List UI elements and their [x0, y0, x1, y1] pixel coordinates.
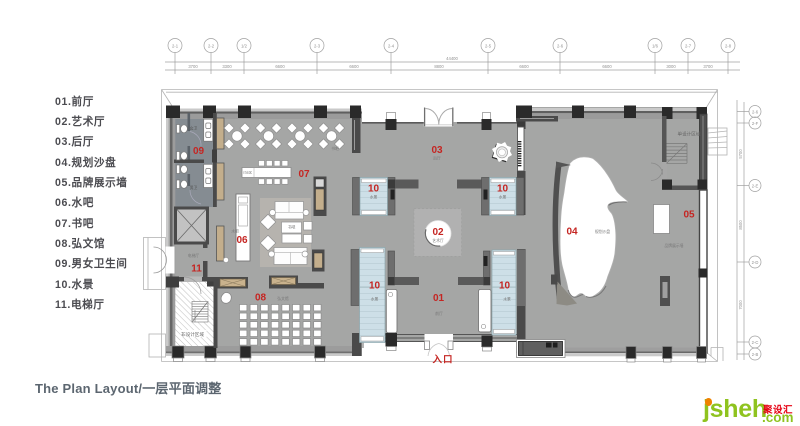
- svg-text:女卫: 女卫: [190, 126, 198, 131]
- svg-text:2-4: 2-4: [388, 44, 395, 49]
- svg-text:8500: 8500: [738, 220, 743, 230]
- svg-text:非设计区域: 非设计区域: [181, 331, 204, 338]
- svg-text:2-1: 2-1: [172, 44, 179, 49]
- svg-text:书吧: 书吧: [331, 146, 339, 151]
- svg-text:3300: 3300: [222, 64, 232, 69]
- svg-text:01: 01: [433, 293, 445, 304]
- svg-text:电梯厅: 电梯厅: [188, 253, 200, 258]
- svg-text:06: 06: [236, 235, 248, 246]
- svg-text:讨论区: 讨论区: [243, 170, 252, 175]
- svg-text:水景: 水景: [499, 195, 507, 200]
- svg-text:单设计区域: 单设计区域: [678, 131, 701, 138]
- svg-text:6600: 6600: [275, 64, 285, 69]
- svg-text:8800: 8800: [434, 64, 444, 69]
- svg-text:1/6: 1/6: [652, 44, 658, 49]
- svg-text:2-3: 2-3: [314, 44, 321, 49]
- svg-text:2-B: 2-B: [752, 352, 759, 357]
- svg-text:艺术厅: 艺术厅: [432, 238, 444, 243]
- svg-text:2-D: 2-D: [752, 260, 759, 265]
- svg-text:书吧: 书吧: [288, 225, 296, 230]
- svg-text:2-6: 2-6: [557, 44, 564, 49]
- svg-text:品牌展示墙: 品牌展示墙: [665, 243, 684, 248]
- svg-text:3000: 3000: [666, 64, 676, 69]
- svg-text:入口: 入口: [431, 355, 453, 366]
- svg-text:1/2: 1/2: [241, 44, 247, 49]
- svg-text:2-7: 2-7: [685, 44, 692, 49]
- svg-text:05: 05: [683, 210, 695, 221]
- svg-text:44400: 44400: [446, 56, 458, 61]
- svg-text:弘文馆: 弘文馆: [277, 296, 289, 301]
- svg-text:3700: 3700: [188, 64, 198, 69]
- svg-text:04: 04: [566, 227, 578, 238]
- svg-text:水吧: 水吧: [231, 229, 239, 234]
- svg-text:07: 07: [298, 169, 310, 180]
- svg-text:10: 10: [368, 184, 380, 195]
- svg-text:3700: 3700: [703, 64, 713, 69]
- svg-text:7000: 7000: [738, 300, 743, 310]
- svg-text:水景: 水景: [371, 297, 379, 302]
- svg-text:2-2: 2-2: [208, 44, 215, 49]
- svg-text:后厅: 后厅: [433, 156, 441, 161]
- svg-text:6600: 6600: [602, 64, 612, 69]
- svg-text:2-8: 2-8: [725, 44, 732, 49]
- svg-text:5700: 5700: [738, 149, 743, 159]
- svg-text:10: 10: [369, 281, 381, 292]
- svg-text:6600: 6600: [349, 64, 359, 69]
- svg-text:水景: 水景: [370, 195, 378, 200]
- svg-text:男卫: 男卫: [190, 185, 198, 190]
- svg-text:10: 10: [497, 184, 509, 195]
- svg-text:水景: 水景: [503, 297, 511, 302]
- svg-text:2-E: 2-E: [752, 184, 759, 189]
- svg-text:2-6: 2-6: [752, 110, 759, 115]
- svg-text:03: 03: [431, 145, 443, 156]
- svg-text:10: 10: [499, 281, 511, 292]
- svg-text:2-F: 2-F: [752, 121, 759, 126]
- svg-text:02: 02: [432, 227, 444, 238]
- svg-text:11: 11: [191, 264, 202, 275]
- svg-text:规划沙盘: 规划沙盘: [595, 229, 610, 234]
- svg-text:2-5: 2-5: [485, 44, 492, 49]
- svg-text:09: 09: [193, 146, 205, 157]
- svg-text:前厅: 前厅: [435, 311, 443, 316]
- svg-text:08: 08: [255, 293, 267, 304]
- svg-text:2-C: 2-C: [752, 340, 759, 345]
- svg-text:6600: 6600: [519, 64, 529, 69]
